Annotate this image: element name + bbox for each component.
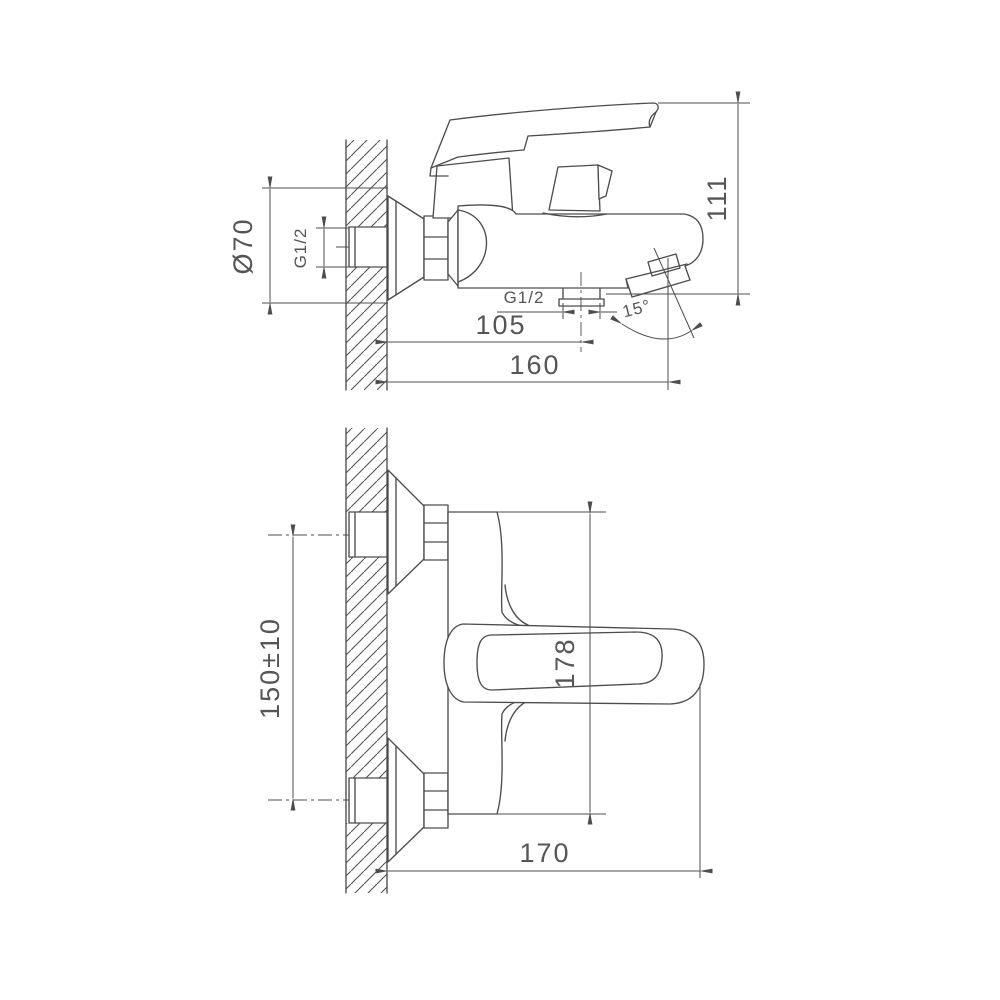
shower-outlet-flange [559,299,604,306]
wall-hatch [346,823,387,893]
faucet-body-side [430,103,703,306]
dim-label-170: 170 [519,838,570,868]
body-slab [458,205,703,297]
hex-nut [424,505,448,560]
dim-label-g12-outlet: G1/2 [504,288,545,307]
plan-view: 178 150±10 170 [255,428,704,893]
dim-label-15deg: 15° [620,296,652,321]
dim-label-178: 178 [550,637,580,688]
technical-drawing-page: Ø70 G1/2 111 G1/2 105 [0,0,1000,1000]
side-view: Ø70 G1/2 111 G1/2 105 [228,103,750,390]
dim-label-d70: Ø70 [228,217,258,274]
angle-arc [622,324,691,339]
dim-mounting-centers: 150±10 [255,537,293,798]
wall-hatch [346,267,387,390]
escutcheon-cone [388,196,424,300]
hex-nut [424,216,448,280]
escutcheon-cone [388,470,424,594]
escutcheon-cone [388,738,424,862]
shower-outlet [563,288,600,299]
wall-hatch [346,557,387,778]
dim-label-150: 150±10 [255,617,285,719]
body-cone [448,210,458,286]
hex-nut [424,773,448,828]
wall-hatch [346,140,387,227]
diverter-knob-side [598,165,612,199]
dim-label-105: 105 [475,310,526,340]
diverter-knob [549,165,600,211]
wall-hatch [346,428,387,512]
dim-inlet-thread: G1/2 [291,228,349,269]
dim-label-111: 111 [702,174,732,221]
dim-label-160: 160 [509,350,560,380]
lever-handle [431,103,658,168]
dim-label-g12-inlet: G1/2 [291,228,310,269]
faucet-technical-drawing: Ø70 G1/2 111 G1/2 105 [0,0,1000,1000]
